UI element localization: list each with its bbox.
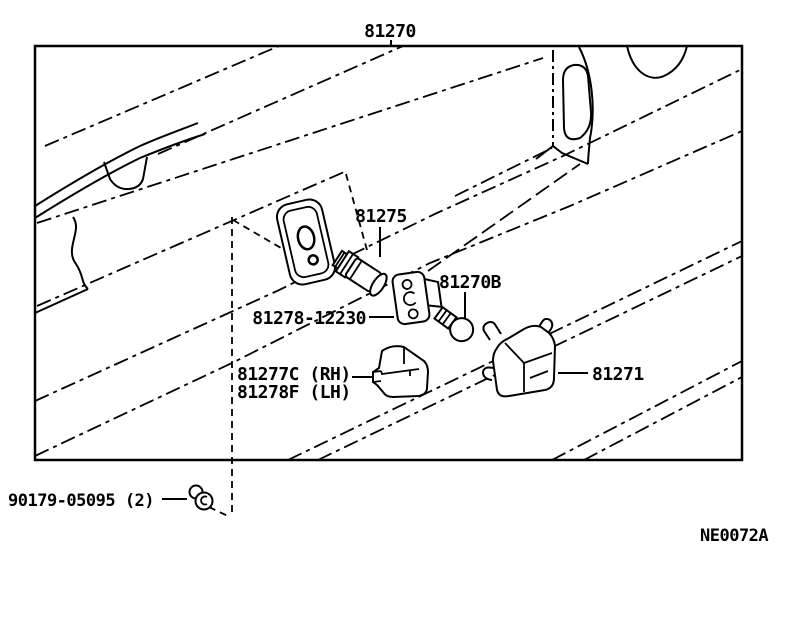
lamp-slot — [536, 47, 593, 164]
label-lens: 81271 — [592, 364, 644, 385]
lamp-cover — [373, 346, 428, 397]
bulb — [432, 304, 478, 346]
lamp-gasket — [274, 197, 337, 287]
label-cover-lh: 81278F (LH) — [237, 382, 351, 403]
panel-wavy-edge — [72, 217, 88, 289]
lens-stud-left — [483, 322, 501, 340]
parts-diagram-page: 81270 81275 81270B 81278-12230 81277C (R… — [0, 0, 792, 642]
panel-top-cutout — [627, 46, 687, 78]
lens-tab — [483, 368, 493, 381]
figure-code: NE0072A — [700, 526, 768, 546]
label-nut: 90179-05095 (2) — [8, 491, 154, 511]
label-retainer: 81278-12230 — [252, 308, 366, 329]
parts-diagram-canvas: 81270 81275 81270B 81278-12230 81277C (R… — [0, 0, 792, 642]
body-panel-phantom-lines — [35, 46, 742, 460]
label-assembly: 81270 — [364, 21, 416, 42]
lens-housing — [483, 319, 555, 397]
label-socket: 81275 — [355, 206, 407, 227]
retainer-phantom-line — [428, 164, 580, 271]
mount-nut — [190, 486, 213, 510]
label-bulb: 81270B — [439, 272, 502, 293]
